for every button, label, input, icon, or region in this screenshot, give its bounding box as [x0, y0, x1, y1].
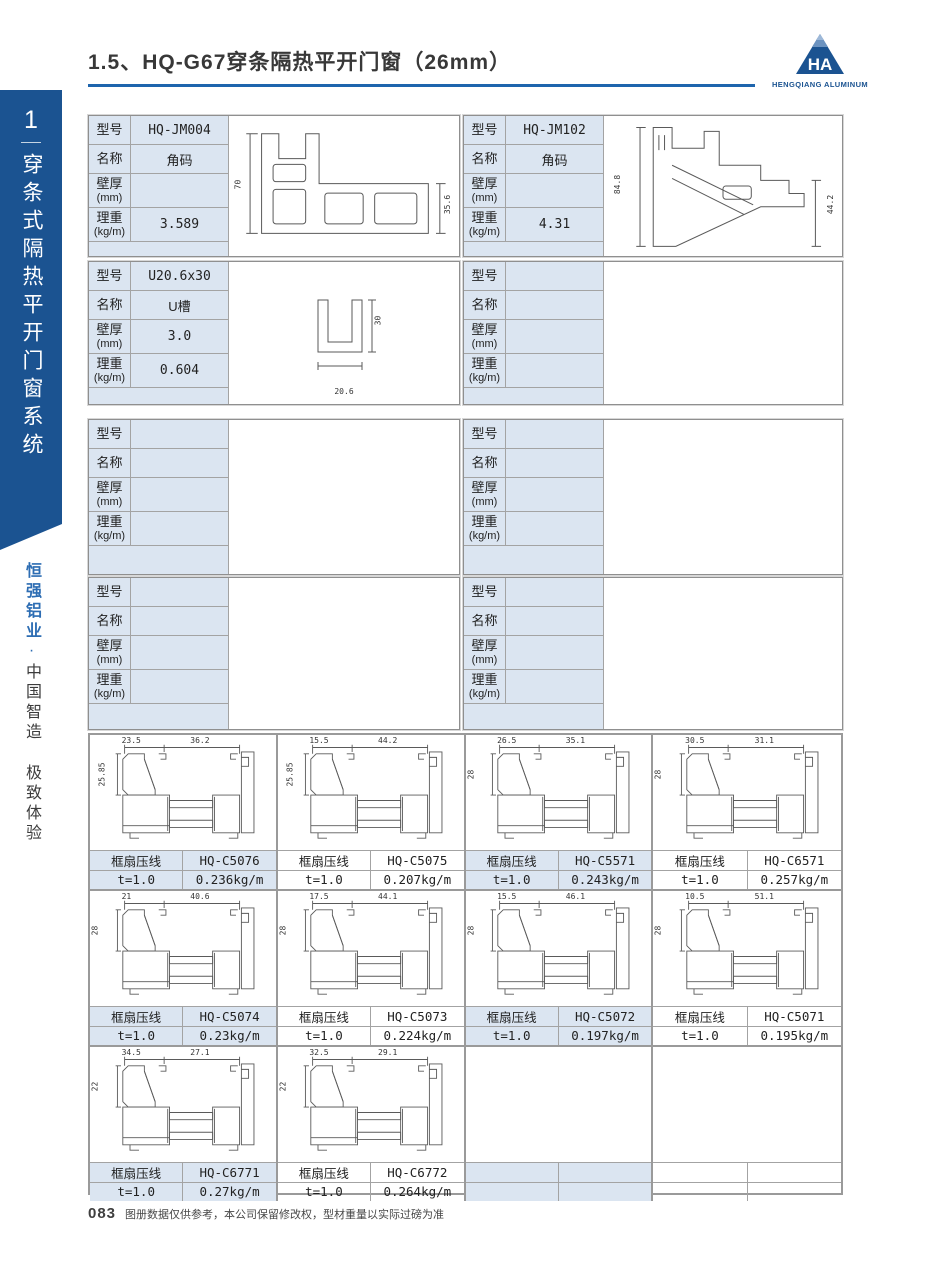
- bead-block-c5073: 17.5 44.1 28 框扇压线HQ-C5073 t=1.00.224kg/m: [278, 891, 466, 1047]
- bead-drawing-empty: [653, 1047, 841, 1162]
- bead-label: 框扇压线: [90, 1007, 182, 1026]
- thickness-value: [131, 478, 228, 511]
- spec-table-u-channel: 型号U20.6x30 名称U槽 壁厚(mm)3.0 理重(kg/m)0.604 …: [88, 261, 460, 405]
- bead-block-c5072: 15.5 46.1 28 框扇压线HQ-C5072 t=1.00.197kg/m: [466, 891, 654, 1047]
- thickness-label: 壁厚(mm): [464, 636, 506, 669]
- thickness-label: 壁厚(mm): [464, 174, 506, 207]
- spec-table-empty: 型号 名称 壁厚(mm) 理重(kg/m): [88, 577, 460, 730]
- dim-height: 84.8: [613, 175, 622, 194]
- name-value: 角码: [131, 145, 228, 173]
- bead-thickness: t=1.0: [278, 871, 370, 890]
- bead-drawing: 34.5 27.1 22: [90, 1047, 276, 1162]
- weight-value: [506, 354, 603, 387]
- name-value: U槽: [131, 291, 228, 319]
- dim-top2: 46.1: [566, 892, 585, 901]
- bead-model: HQ-C5072: [558, 1007, 651, 1026]
- name-value: [506, 607, 603, 635]
- thickness-value: [506, 478, 603, 511]
- bead-weight: [747, 1183, 841, 1202]
- corner-profile-icon: [607, 120, 839, 252]
- weight-value: [131, 670, 228, 703]
- bead-weight: 0.195kg/m: [747, 1027, 841, 1046]
- spec-table-empty: 型号 名称 壁厚(mm) 理重(kg/m): [463, 419, 843, 575]
- dim-top1: 32.5: [309, 1048, 328, 1057]
- thickness-value: [506, 174, 603, 207]
- bead-model: HQ-C6571: [747, 851, 841, 870]
- bead-weight: 0.27kg/m: [182, 1183, 275, 1202]
- weight-value: 3.589: [131, 208, 228, 241]
- table-filler: [464, 704, 603, 729]
- profile-drawing-empty: [604, 262, 842, 404]
- table-filler: [464, 546, 603, 574]
- weight-label: 理重(kg/m): [464, 354, 506, 387]
- bead-model: HQ-C5075: [370, 851, 463, 870]
- profile-drawing-empty: [229, 578, 459, 729]
- name-label: 名称: [464, 291, 506, 319]
- model-value: HQ-JM102: [506, 116, 603, 144]
- thickness-value: [131, 636, 228, 669]
- bead-drawing: 23.5 36.2 25.85: [90, 735, 276, 850]
- weight-value: 4.31: [506, 208, 603, 241]
- model-label: 型号: [89, 262, 131, 290]
- table-filler: [89, 546, 228, 574]
- bead-drawing: 26.5 35.1 28: [466, 735, 652, 850]
- thickness-label: 壁厚(mm): [89, 478, 131, 511]
- dim-top1: 30.5: [685, 736, 704, 745]
- bead-label: 框扇压线: [466, 1007, 558, 1026]
- dim-height: 22: [90, 1081, 99, 1091]
- dim-top1: 21: [122, 892, 132, 901]
- weight-label: 理重(kg/m): [89, 670, 131, 703]
- dim-top2: 44.2: [378, 736, 397, 745]
- dim-height: 25.85: [98, 762, 107, 786]
- bead-thickness: t=1.0: [90, 871, 182, 890]
- bead-weight: 0.224kg/m: [370, 1027, 463, 1046]
- dim-top2: 44.1: [378, 892, 397, 901]
- dim-top2: 40.6: [190, 892, 209, 901]
- bead-thickness: t=1.0: [90, 1027, 182, 1046]
- dim-top1: 15.5: [497, 892, 516, 901]
- bead-label: 框扇压线: [653, 1007, 746, 1026]
- model-value: [506, 578, 603, 606]
- footer-note: 图册数据仅供参考，本公司保留修改权，型材重量以实际过磅为准: [125, 1206, 444, 1222]
- bead-model: [747, 1163, 841, 1182]
- spec-table-empty: 型号 名称 壁厚(mm) 理重(kg/m): [463, 577, 843, 730]
- bead-drawing: 10.5 51.1 28: [653, 891, 841, 1006]
- bead-block-c5075: 15.5 44.2 25.85 框扇压线HQ-C5075 t=1.00.207k…: [278, 735, 466, 891]
- profile-drawing-u: 30 20.6: [229, 262, 459, 404]
- bead-model: HQ-C5074: [182, 1007, 275, 1026]
- page-footer: 083 图册数据仅供参考，本公司保留修改权，型材重量以实际过磅为准: [88, 1205, 444, 1222]
- model-label: 型号: [464, 262, 506, 290]
- model-label: 型号: [89, 116, 131, 144]
- dim-top1: 26.5: [497, 736, 516, 745]
- profile-drawing-empty: [229, 420, 459, 574]
- dim-top2: 31.1: [755, 736, 774, 745]
- bead-drawing: 32.5 29.1 22: [278, 1047, 464, 1162]
- dim-height: 28: [654, 769, 663, 779]
- bead-thickness: t=1.0: [90, 1183, 182, 1202]
- dim-width: 35.6: [443, 195, 452, 214]
- thickness-value: [506, 320, 603, 353]
- u-channel-icon: [284, 286, 404, 381]
- chapter-ribbon: 1 穿条式隔热平开门窗系统: [0, 90, 62, 550]
- bead-weight: 0.264kg/m: [370, 1183, 463, 1202]
- bead-block-empty: [653, 1047, 841, 1201]
- table-filler: [464, 388, 603, 404]
- bead-weight: [558, 1183, 651, 1202]
- bead-block-c6772: 32.5 29.1 22 框扇压线HQ-C6772 t=1.00.264kg/m: [278, 1047, 466, 1201]
- weight-label: 理重(kg/m): [464, 670, 506, 703]
- model-value: [131, 420, 228, 448]
- bead-thickness: t=1.0: [653, 1027, 746, 1046]
- bead-label: 框扇压线: [278, 851, 370, 870]
- ribbon-divider: [21, 142, 41, 143]
- name-label: 名称: [89, 449, 131, 477]
- bead-label: 框扇压线: [466, 851, 558, 870]
- name-label: 名称: [464, 607, 506, 635]
- dim-top2: 29.1: [378, 1048, 397, 1057]
- chapter-number: 1: [24, 106, 38, 135]
- spec-table-empty: 型号 名称 壁厚(mm) 理重(kg/m): [88, 419, 460, 575]
- weight-label: 理重(kg/m): [89, 208, 131, 241]
- bead-model: [558, 1163, 651, 1182]
- table-filler: [89, 704, 228, 729]
- dim-top2: 27.1: [190, 1048, 209, 1057]
- thickness-value: [506, 636, 603, 669]
- dim-width: 20.6: [334, 387, 353, 396]
- bead-block-c5071: 10.5 51.1 28 框扇压线HQ-C5071 t=1.00.195kg/m: [653, 891, 841, 1047]
- table-filler: [89, 242, 228, 256]
- brand-slogan: 恒强铝业·中国智造 极致体验: [0, 562, 62, 844]
- bead-drawing: 15.5 46.1 28: [466, 891, 652, 1006]
- slogan-brand: 恒强铝业: [23, 562, 40, 642]
- bead-weight: 0.257kg/m: [747, 871, 841, 890]
- bead-label: 框扇压线: [90, 1163, 182, 1182]
- bead-profile-grid: 23.5 36.2 25.85 框扇压线HQ-C5076 t=1.00.236k…: [88, 733, 843, 1195]
- thickness-label: 壁厚(mm): [89, 320, 131, 353]
- dim-height: 22: [278, 1081, 287, 1091]
- model-label: 型号: [89, 578, 131, 606]
- dim-height: 28: [466, 925, 475, 935]
- model-value: [506, 420, 603, 448]
- bead-label: 框扇压线: [90, 851, 182, 870]
- bead-model: HQ-C5571: [558, 851, 651, 870]
- profile-drawing-empty: [604, 420, 842, 574]
- name-value: 角码: [506, 145, 603, 173]
- spec-table-jm004: 型号HQ-JM004 名称角码 壁厚(mm) 理重(kg/m)3.589: [88, 115, 460, 257]
- dim-height: 70: [233, 180, 242, 190]
- bead-drawing: 30.5 31.1 28: [653, 735, 841, 850]
- name-value: [131, 607, 228, 635]
- name-label: 名称: [89, 145, 131, 173]
- bead-label: [653, 1163, 746, 1182]
- thickness-label: 壁厚(mm): [89, 174, 131, 207]
- dim-height: 30: [374, 316, 383, 326]
- weight-value: 0.604: [131, 354, 228, 387]
- slogan-text: 中国智造 极致体验: [23, 663, 40, 844]
- name-label: 名称: [464, 449, 506, 477]
- bead-block-c6571: 30.5 31.1 28 框扇压线HQ-C6571 t=1.00.257kg/m: [653, 735, 841, 891]
- page-number: 083: [88, 1205, 116, 1222]
- model-label: 型号: [464, 420, 506, 448]
- bead-label: [466, 1163, 558, 1182]
- dim-height: 28: [654, 925, 663, 935]
- profile-drawing-jm004: 70 35.6: [229, 116, 459, 256]
- weight-label: 理重(kg/m): [89, 354, 131, 387]
- model-label: 型号: [464, 116, 506, 144]
- bead-model: HQ-C5073: [370, 1007, 463, 1026]
- name-value: [131, 449, 228, 477]
- weight-label: 理重(kg/m): [464, 208, 506, 241]
- thickness-label: 壁厚(mm): [464, 320, 506, 353]
- spec-table-empty: 型号 名称 壁厚(mm) 理重(kg/m): [463, 261, 843, 405]
- bead-block-empty: [466, 1047, 654, 1201]
- bead-thickness: t=1.0: [466, 871, 558, 890]
- name-label: 名称: [464, 145, 506, 173]
- bead-model: HQ-C6771: [182, 1163, 275, 1182]
- model-value: U20.6x30: [131, 262, 228, 290]
- thickness-label: 壁厚(mm): [89, 636, 131, 669]
- dim-width: 44.2: [826, 195, 835, 214]
- bead-weight: 0.23kg/m: [182, 1027, 275, 1046]
- bead-thickness: t=1.0: [466, 1027, 558, 1046]
- model-value: HQ-JM004: [131, 116, 228, 144]
- bead-label: 框扇压线: [653, 851, 746, 870]
- model-value: [131, 578, 228, 606]
- profile-drawing-jm102: 84.8 44.2: [604, 116, 842, 256]
- dim-top2: 35.1: [566, 736, 585, 745]
- dim-top1: 23.5: [122, 736, 141, 745]
- bead-weight: 0.243kg/m: [558, 871, 651, 890]
- slogan-dot: ·: [23, 642, 40, 663]
- weight-value: [506, 512, 603, 545]
- dim-top1: 34.5: [122, 1048, 141, 1057]
- thickness-value: [131, 174, 228, 207]
- weight-value: [131, 512, 228, 545]
- bead-weight: 0.207kg/m: [370, 871, 463, 890]
- bead-drawing: 15.5 44.2 25.85: [278, 735, 464, 850]
- bead-label: 框扇压线: [278, 1007, 370, 1026]
- thickness-label: 壁厚(mm): [464, 478, 506, 511]
- bead-weight: 0.236kg/m: [182, 871, 275, 890]
- dim-top2: 51.1: [755, 892, 774, 901]
- table-filler: [89, 388, 228, 404]
- name-label: 名称: [89, 291, 131, 319]
- dim-top1: 10.5: [685, 892, 704, 901]
- bead-drawing-empty: [466, 1047, 652, 1162]
- dim-height: 25.85: [285, 762, 294, 786]
- bead-thickness: [466, 1183, 558, 1202]
- dim-height: 28: [90, 925, 99, 935]
- profile-drawing-empty: [604, 578, 842, 729]
- bead-thickness: [653, 1183, 746, 1202]
- bead-block-c5076: 23.5 36.2 25.85 框扇压线HQ-C5076 t=1.00.236k…: [90, 735, 278, 891]
- thickness-value: 3.0: [131, 320, 228, 353]
- bead-block-c6771: 34.5 27.1 22 框扇压线HQ-C6771 t=1.00.27kg/m: [90, 1047, 278, 1201]
- table-filler: [464, 242, 603, 256]
- bead-label: 框扇压线: [278, 1163, 370, 1182]
- bead-model: HQ-C6772: [370, 1163, 463, 1182]
- dim-top2: 36.2: [190, 736, 209, 745]
- name-value: [506, 291, 603, 319]
- bead-thickness: t=1.0: [278, 1183, 370, 1202]
- model-label: 型号: [89, 420, 131, 448]
- bead-block-c5571: 26.5 35.1 28 框扇压线HQ-C5571 t=1.00.243kg/m: [466, 735, 654, 891]
- weight-label: 理重(kg/m): [89, 512, 131, 545]
- bead-drawing: 21 40.6 28: [90, 891, 276, 1006]
- bead-drawing: 17.5 44.1 28: [278, 891, 464, 1006]
- name-label: 名称: [89, 607, 131, 635]
- bead-weight: 0.197kg/m: [558, 1027, 651, 1046]
- dim-top1: 15.5: [309, 736, 328, 745]
- dim-top1: 17.5: [309, 892, 328, 901]
- model-value: [506, 262, 603, 290]
- catalog-page: 1.5、HQ-G67穿条隔热平开门窗（26mm） HA HENGQIANG AL…: [0, 0, 930, 1262]
- spec-table-jm102: 型号HQ-JM102 名称角码 壁厚(mm) 理重(kg/m)4.31 84.8…: [463, 115, 843, 257]
- name-value: [506, 449, 603, 477]
- corner-profile-icon: [229, 125, 459, 247]
- dim-height: 28: [278, 925, 287, 935]
- bead-thickness: t=1.0: [278, 1027, 370, 1046]
- bead-block-c5074: 21 40.6 28 框扇压线HQ-C5074 t=1.00.23kg/m: [90, 891, 278, 1047]
- dim-height: 28: [466, 769, 475, 779]
- bead-model: HQ-C5076: [182, 851, 275, 870]
- weight-label: 理重(kg/m): [464, 512, 506, 545]
- chapter-title: 穿条式隔热平开门窗系统: [16, 153, 46, 461]
- bead-model: HQ-C5071: [747, 1007, 841, 1026]
- model-label: 型号: [464, 578, 506, 606]
- weight-value: [506, 670, 603, 703]
- bead-thickness: t=1.0: [653, 871, 746, 890]
